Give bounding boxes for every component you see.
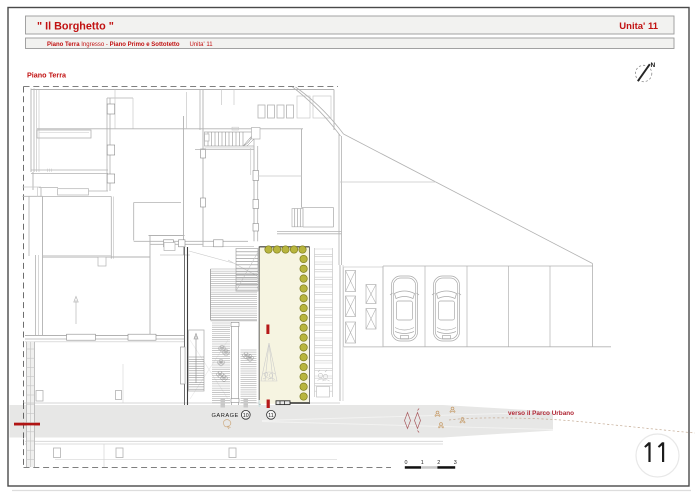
svg-text:2: 2 — [437, 460, 440, 466]
svg-text:Piano Terra: Piano Terra — [27, 71, 67, 80]
svg-text:" Il Borghetto ": " Il Borghetto " — [37, 21, 114, 33]
svg-text:11: 11 — [268, 413, 273, 419]
svg-text:3: 3 — [454, 460, 457, 466]
svg-text:verso il Parco Urbano: verso il Parco Urbano — [508, 410, 574, 417]
svg-text:Piano Terra Ingresso - Piano P: Piano Terra Ingresso - Piano Primo e Sot… — [47, 42, 180, 48]
svg-text:Unita' 11: Unita' 11 — [619, 21, 658, 32]
svg-text:GARAGE: GARAGE — [212, 413, 239, 419]
svg-text:10: 10 — [243, 413, 249, 419]
svg-text:1: 1 — [421, 460, 424, 466]
svg-text:N: N — [651, 62, 656, 69]
svg-text:Unita' 11: Unita' 11 — [190, 42, 214, 48]
svg-text:0: 0 — [405, 460, 408, 466]
svg-text:| | |: | | | — [47, 168, 52, 172]
